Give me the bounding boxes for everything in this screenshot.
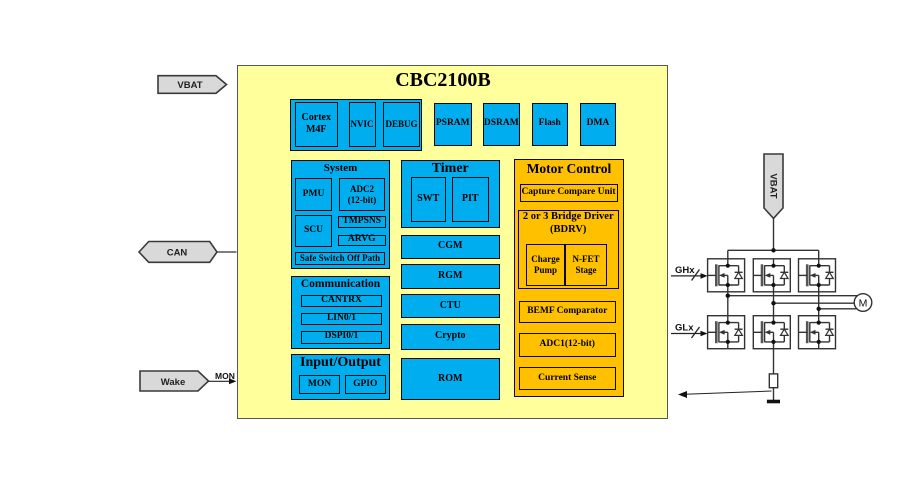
svg-text:MON: MON	[215, 371, 235, 381]
svg-text:GHx: GHx	[675, 265, 695, 276]
svg-text:GLx: GLx	[675, 323, 694, 334]
svg-text:VBAT: VBAT	[177, 80, 202, 91]
svg-text:VBAT: VBAT	[767, 173, 778, 198]
svg-text:CAN: CAN	[167, 247, 188, 258]
svg-text:M: M	[859, 298, 868, 310]
svg-text:Wake: Wake	[161, 377, 185, 388]
